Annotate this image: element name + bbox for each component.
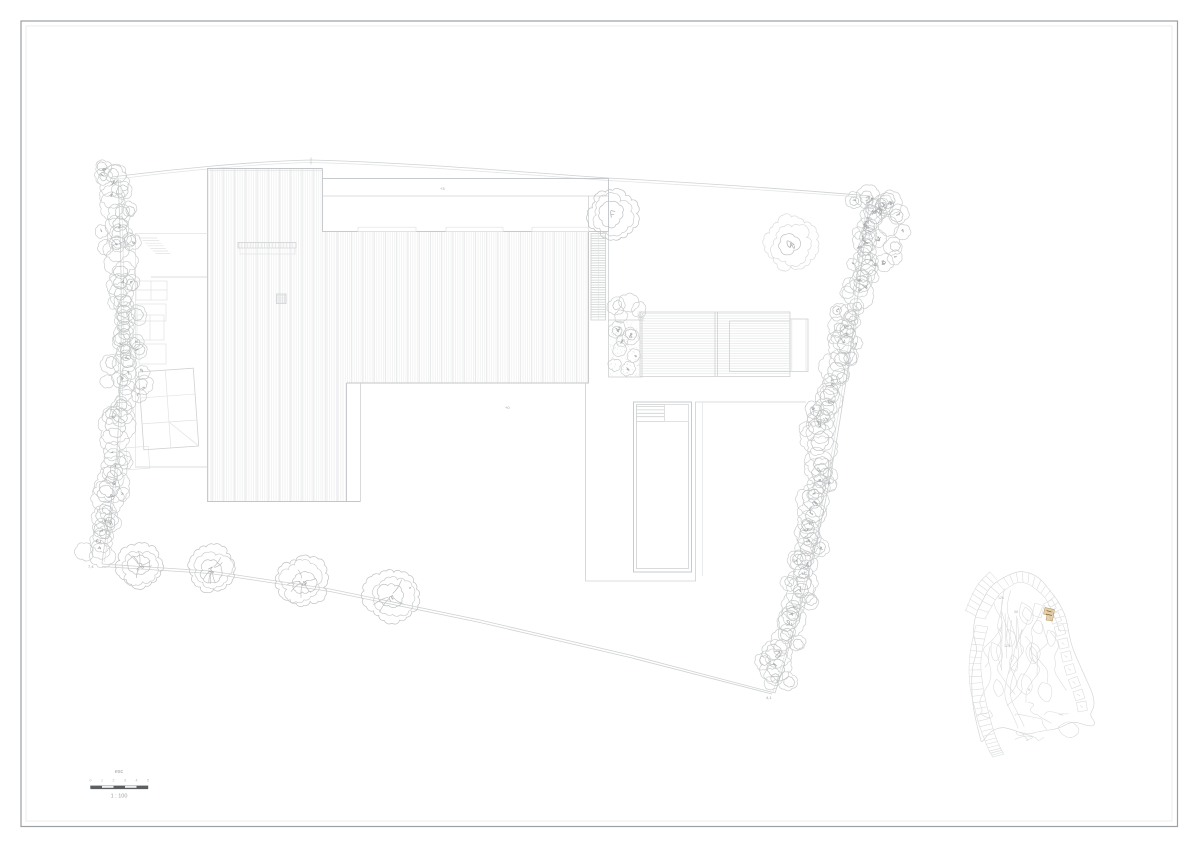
svg-text:esc: esc — [115, 769, 124, 775]
svg-text:1: 1 — [101, 779, 103, 783]
svg-text:0: 0 — [90, 779, 92, 783]
svg-text:9: 9 — [1028, 688, 1030, 692]
svg-text:1 : 100: 1 : 100 — [111, 794, 128, 800]
svg-text:7,4: 7,4 — [88, 564, 94, 569]
svg-text:+3: +3 — [440, 186, 445, 191]
svg-text:4,1: 4,1 — [766, 695, 772, 700]
svg-text:2: 2 — [113, 779, 115, 783]
svg-text:58: 58 — [1014, 610, 1018, 614]
svg-text:5: 5 — [147, 779, 149, 783]
svg-text:4: 4 — [136, 779, 138, 783]
svg-text:124: 124 — [1004, 644, 1010, 648]
svg-text:+0: +0 — [505, 405, 510, 410]
svg-text:126: 126 — [998, 596, 1004, 600]
svg-text:3: 3 — [124, 779, 126, 783]
